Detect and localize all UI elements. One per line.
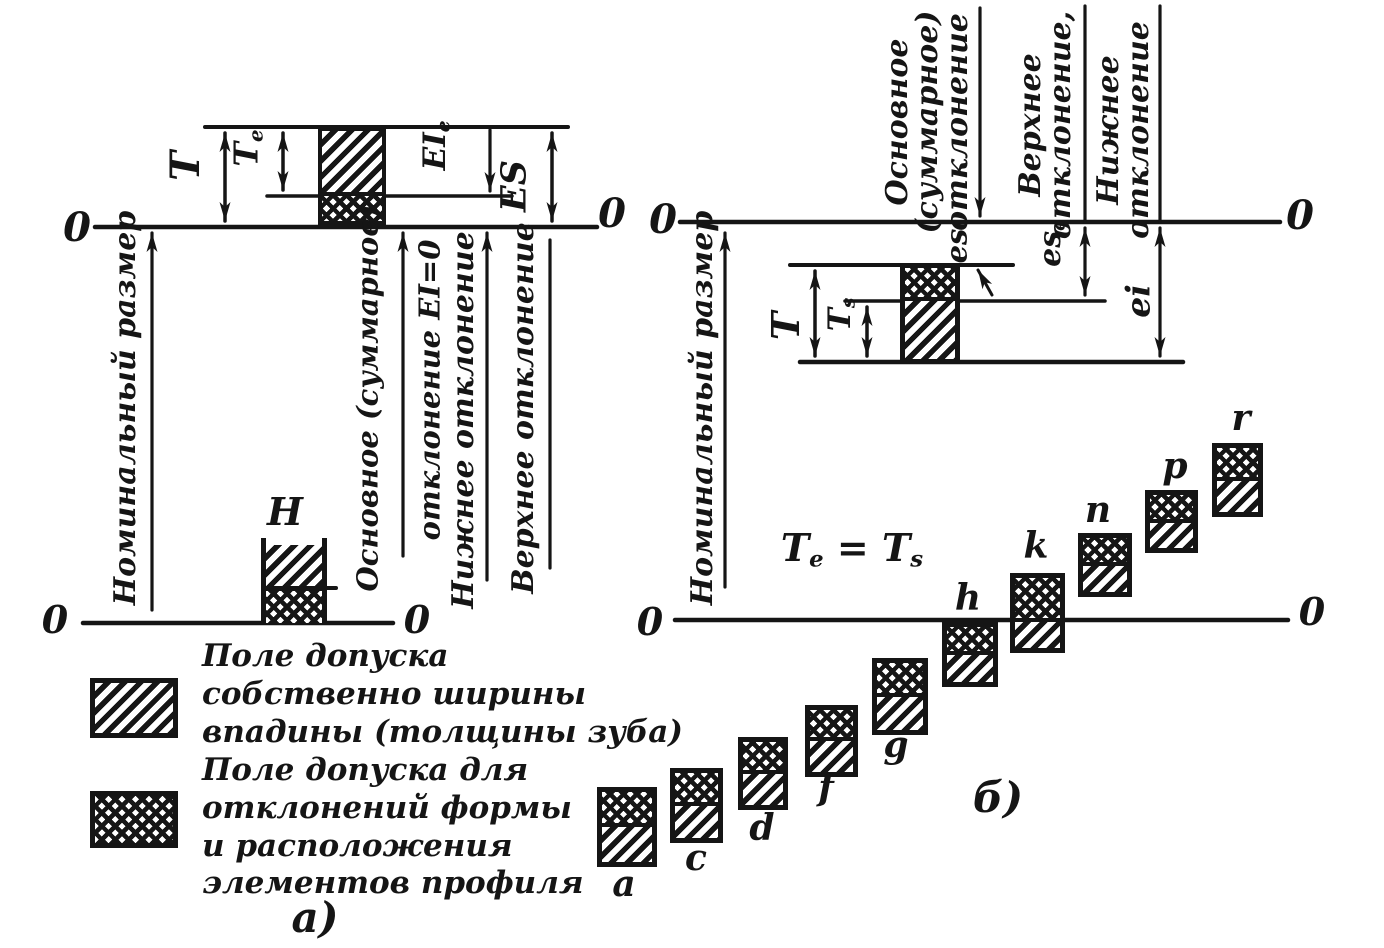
width-tolerance-zone: [266, 545, 322, 586]
label-Ts-b: Ts: [794, 298, 890, 375]
legend-cross-hatch-swatch: [90, 791, 178, 848]
label-basic-deviation-a-line2: отклонение EI=0: [416, 240, 445, 541]
label-ese-base: es: [1033, 231, 1068, 267]
width-tolerance-zone: [602, 827, 652, 862]
zero-label: 0: [63, 208, 91, 248]
series-label-h: h: [955, 580, 981, 616]
label-Ts-base: T: [822, 308, 858, 331]
width-tolerance-zone: [905, 301, 955, 359]
arrow-es-b: [978, 270, 992, 295]
label-nominal-size-a: Номинальный размер: [111, 211, 141, 606]
tolerance-box-series-d: [738, 737, 788, 810]
label-Te-base: T: [227, 142, 266, 167]
form-tolerance-zone: [266, 591, 322, 623]
width-tolerance-zone: [1083, 566, 1127, 592]
label-basic-deviation-a-line1: Основное (суммарное): [354, 204, 383, 591]
open-top-gap: [266, 538, 322, 545]
zero-label: 0: [1299, 593, 1325, 631]
label-basic-deviation-b: Основное (суммарное) отклонение: [883, 10, 973, 233]
label-EIe-subscript: e: [434, 120, 455, 132]
legend-item-1-text: Поле допуска собственно ширины впадины (…: [202, 638, 683, 751]
form-tolerance-zone: [877, 663, 923, 693]
tolerance-box-b-main: [900, 263, 960, 364]
label-Te-a: Te: [197, 129, 300, 212]
form-tolerance-zone: [947, 627, 993, 651]
tolerance-box-h: [261, 538, 327, 623]
label-ES-a: ES: [497, 160, 532, 212]
label-upper-deviation-b: Верхнее отклонение,: [1016, 11, 1076, 239]
label-ese-b: ese: [1006, 219, 1099, 308]
width-tolerance-zone: [1150, 523, 1193, 548]
tolerance-box-series-n: [1078, 533, 1132, 597]
series-label-a: a: [612, 866, 635, 902]
tolerance-box-series-k: [1010, 573, 1065, 653]
caption-panel-a: а): [291, 897, 338, 939]
form-tolerance-zone: [810, 710, 853, 737]
series-label-k: k: [1024, 528, 1049, 564]
tolerance-box-series-r: [1212, 443, 1263, 517]
caption-panel-b: б): [973, 777, 1023, 819]
form-tolerance-zone: [675, 773, 718, 802]
form-tolerance-zone: [602, 792, 652, 823]
equation-mid: = T: [824, 525, 911, 570]
zero-label: 0: [649, 200, 677, 240]
tolerance-box-series-p: [1145, 490, 1198, 553]
label-EIe-base: EI: [417, 132, 453, 170]
series-label-n: n: [1085, 492, 1111, 528]
zero-label: 0: [637, 603, 663, 641]
legend-item-2-text: Поле допуска для отклонений формы и расп…: [202, 752, 584, 903]
zero-label: 0: [1286, 196, 1314, 236]
label-ese-subscript: e: [1048, 219, 1069, 230]
label-lower-deviation-a: Нижнее отклонение: [449, 231, 479, 609]
width-tolerance-zone: [675, 806, 718, 838]
width-tolerance-zone: [947, 655, 993, 682]
form-tolerance-zone: [1150, 495, 1193, 519]
equation-t1: T: [781, 525, 809, 570]
label-EIe-a: EIe: [389, 120, 485, 213]
zero-label: 0: [42, 601, 68, 639]
equation-sub2: s: [910, 546, 923, 572]
form-tolerance-zone: [1083, 538, 1127, 562]
series-label-r: r: [1232, 400, 1251, 436]
label-Ts-subscript: s: [839, 298, 860, 308]
form-tolerance-zone: [743, 742, 783, 770]
form-tolerance-zone: [905, 268, 955, 297]
zero-label: 0: [598, 194, 626, 234]
width-tolerance-zone: [322, 131, 382, 192]
series-label-f: f: [818, 770, 834, 806]
label-H: H: [267, 493, 303, 531]
figure-canvas: 0 0 T Te EIe ES Номинальный размер Основ…: [0, 0, 1384, 948]
label-ei-b: ei: [1122, 284, 1155, 318]
equation-te-equals-ts: Te = Ts: [781, 491, 923, 571]
width-tolerance-zone: [1015, 622, 1060, 648]
width-tolerance-zone: [743, 774, 783, 805]
tolerance-box-series-c: [670, 768, 723, 843]
width-tolerance-zone: [1217, 481, 1258, 512]
series-label-c: c: [685, 840, 707, 876]
label-nominal-size-b: Номинальный размер: [688, 211, 718, 606]
form-tolerance-zone: [1217, 448, 1258, 477]
tolerance-box-series-h: [942, 622, 998, 687]
legend-diagonal-hatch-swatch: [90, 678, 178, 738]
tolerance-box-series-a: [597, 787, 657, 867]
series-label-g: g: [883, 727, 908, 763]
label-es-b: es: [943, 229, 972, 264]
label-upper-deviation-a: Верхнее отклонение: [509, 222, 539, 594]
series-label-d: d: [749, 810, 774, 846]
form-tolerance-zone: [1015, 578, 1060, 618]
series-label-p: p: [1162, 448, 1187, 484]
label-lower-deviation-b: Нижнее отклонение: [1094, 21, 1154, 239]
zero-label: 0: [404, 601, 430, 639]
equation-sub1: e: [809, 546, 824, 572]
label-Te-subscript: e: [244, 129, 268, 142]
